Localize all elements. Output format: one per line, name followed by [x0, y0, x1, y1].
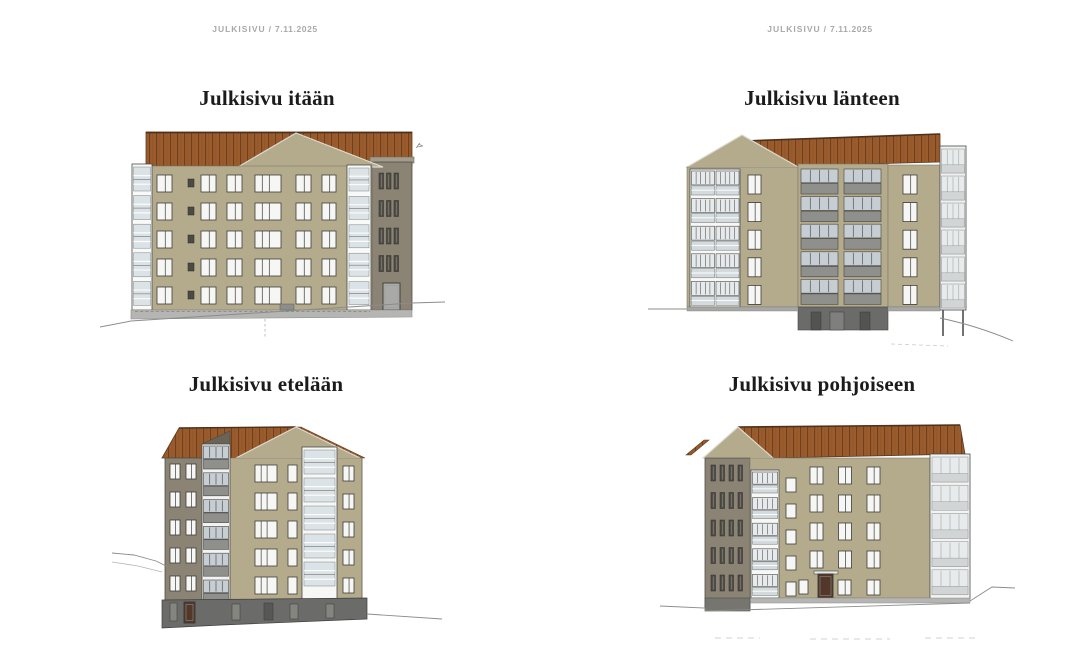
panel-title-east: Julkisivu itään	[100, 86, 434, 111]
header-label: JULKISIVU	[212, 24, 265, 34]
north-elevation-drawing	[660, 410, 1015, 655]
south-elevation-drawing	[112, 400, 442, 660]
header-separator: /	[824, 24, 827, 34]
header-date: 7.11.2025	[830, 24, 873, 34]
panel-title-south: Julkisivu etelään	[99, 372, 433, 397]
panel-title-west: Julkisivu länteen	[655, 86, 989, 111]
elevation-sheet: { "header_left": { "label": "JULKISIVU",…	[0, 0, 1067, 667]
west-elevation-drawing	[648, 122, 1013, 357]
sheet-header-left: JULKISIVU/7.11.2025	[115, 24, 415, 34]
header-separator: /	[269, 24, 272, 34]
east-elevation-drawing	[100, 118, 445, 353]
panel-title-north: Julkisivu pohjoiseen	[655, 372, 989, 397]
sheet-header-right: JULKISIVU/7.11.2025	[670, 24, 970, 34]
header-date: 7.11.2025	[275, 24, 318, 34]
header-label: JULKISIVU	[767, 24, 820, 34]
